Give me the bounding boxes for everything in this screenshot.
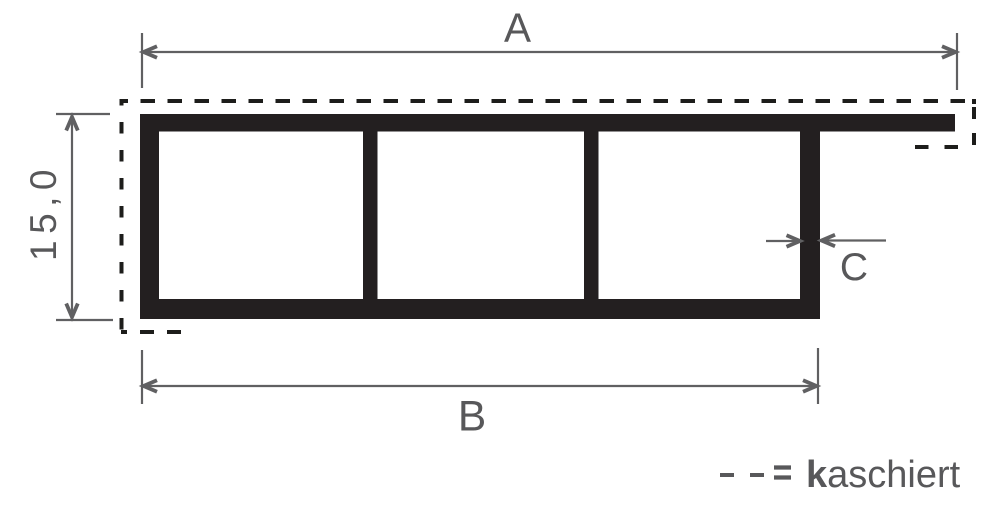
svg-text:B: B [458,394,486,441]
svg-text:kaschiert: kaschiert [806,454,961,496]
svg-text:C: C [840,246,868,289]
svg-text:A: A [504,5,531,51]
svg-text:15,0: 15,0 [23,163,64,261]
